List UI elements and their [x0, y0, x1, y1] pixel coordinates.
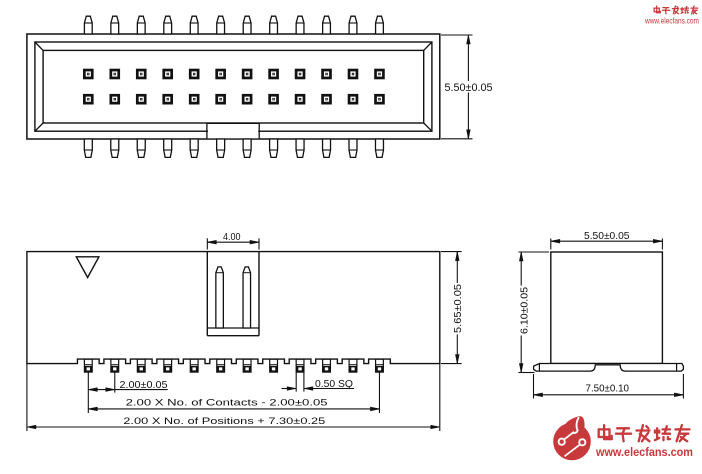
svg-text:7.50±0.10: 7.50±0.10: [586, 384, 630, 395]
svg-text:2.00 X No. of Contacts - 2.00±: 2.00 X No. of Contacts - 2.00±0.05: [126, 397, 328, 408]
svg-text:0.50 SQ: 0.50 SQ: [315, 379, 353, 390]
svg-text:5.50±0.05: 5.50±0.05: [584, 231, 630, 242]
svg-text:2.00 X No. of Positions + 7.30: 2.00 X No. of Positions + 7.30±0.25: [123, 416, 325, 427]
svg-text:www.elecfans.com: www.elecfans.com: [595, 445, 693, 459]
svg-text:2.00±0.05: 2.00±0.05: [120, 380, 168, 391]
svg-text:6.10±0.05: 6.10±0.05: [520, 287, 531, 334]
svg-text:5.50±0.05: 5.50±0.05: [445, 82, 493, 94]
svg-text:5.65±0.05: 5.65±0.05: [453, 284, 464, 333]
svg-text:www.elecfans.com: www.elecfans.com: [644, 17, 699, 26]
svg-text:4.00: 4.00: [223, 232, 241, 243]
